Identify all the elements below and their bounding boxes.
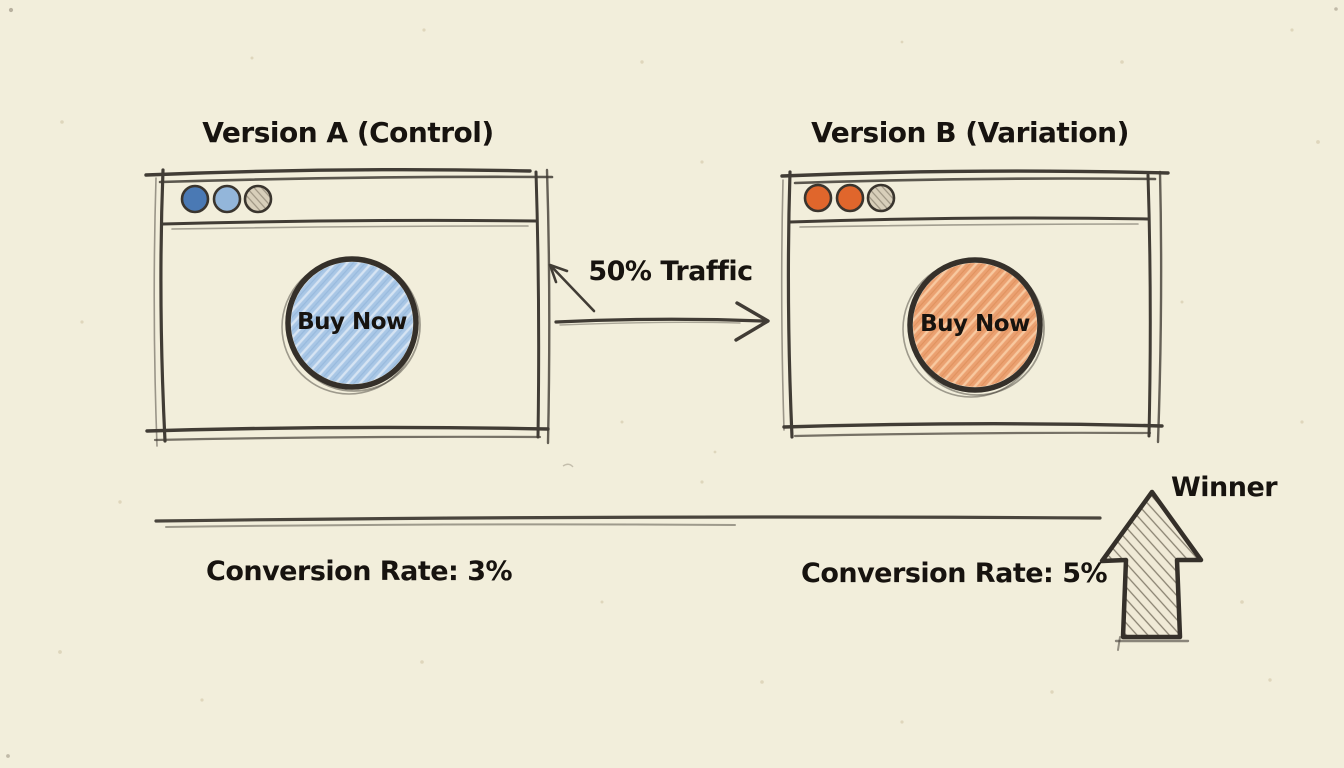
buy-now-label-b: Buy Now (875, 311, 1075, 337)
version-b-window-controls (805, 185, 894, 211)
ab-test-diagram: Version A (Control) Version B (Variation… (0, 0, 1344, 768)
winner-label: Winner (1171, 472, 1277, 503)
window-control-dot (245, 186, 271, 212)
version-a-window-controls (182, 186, 271, 212)
traffic-arrow (556, 303, 768, 340)
traffic-split-label: 50% Traffic (578, 256, 763, 287)
conversion-rate-a: Conversion Rate: 3% (206, 556, 512, 587)
window-control-dot (868, 185, 894, 211)
buy-now-label-a: Buy Now (252, 309, 452, 335)
results-divider-line (156, 517, 1100, 527)
window-control-dot (805, 185, 831, 211)
winner-arrow (1102, 492, 1201, 650)
conversion-rate-b: Conversion Rate: 5% (801, 558, 1107, 589)
version-a-title: Version A (Control) (148, 116, 548, 149)
window-control-dot (182, 186, 208, 212)
window-control-dot (837, 185, 863, 211)
version-b-title: Version B (Variation) (770, 116, 1170, 149)
window-control-dot (214, 186, 240, 212)
